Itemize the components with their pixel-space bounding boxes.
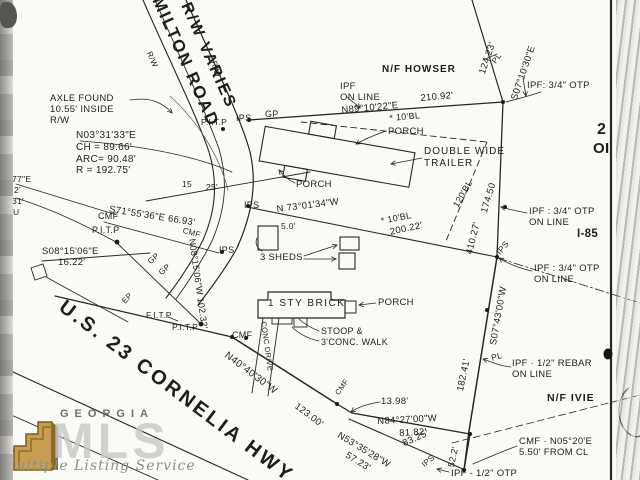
- ref-i85: I-85: [577, 228, 598, 242]
- house-label: 1 STY BRICK: [268, 298, 345, 310]
- bearing-s0710: S07°10'30"E: [509, 44, 538, 101]
- bearing-n08: N08°15'06"W 102.32': [186, 238, 209, 330]
- ips-road-1: IPS: [244, 200, 259, 211]
- bl-120: 120'BL: [451, 178, 475, 209]
- ips-east: IPS: [494, 239, 511, 257]
- ipf-otp-mid1: IPF : 3/4" OTP ON LINE: [529, 206, 595, 228]
- fitp-1: F.I.T.P: [146, 310, 172, 320]
- bl-10-north: * 10'BL: [389, 110, 421, 123]
- ipf-otp-top: IPF: 3/4" OTP: [527, 80, 590, 91]
- porch-trailer-bottom: PORCH: [296, 179, 332, 190]
- gp-mid-2: GP: [157, 262, 172, 277]
- cmf-2: CMF: [182, 226, 202, 240]
- double-wide-trailer: DOUBLE WIDE TRAILER: [424, 146, 505, 170]
- note-ipf-online-top: IPF ON LINE: [340, 81, 380, 103]
- dist-north-line: 210.92': [420, 90, 454, 104]
- dist-1622: 16.22': [58, 257, 85, 268]
- dim-25: 25': [206, 182, 218, 192]
- dist-18241: 182.41': [455, 358, 473, 393]
- edge-frag-31: 31': [12, 196, 24, 206]
- conc-drive: CONC DRIVE: [258, 321, 274, 372]
- cmf-note: CMF · N05°20'E 5.50' FROM CL: [519, 436, 592, 458]
- ips-top: IPS: [236, 113, 251, 124]
- edge-frag-u: U: [13, 207, 19, 217]
- note-axle-found: AXLE FOUND 10.55' INSIDE R/W: [50, 93, 114, 127]
- pitp-2: P.I.T.P: [172, 322, 198, 332]
- ipf-rebar: IPF · 1/2" REBAR ON LINE: [512, 358, 592, 380]
- pitp-top: P.I.T.P: [201, 117, 227, 127]
- dist-12300: 123.00': [292, 401, 325, 430]
- dist-522: 52.2': [446, 446, 461, 469]
- scan-edge-right: [616, 0, 640, 480]
- ips-road-2: IPS: [219, 245, 234, 256]
- gp-mid-1: GP: [146, 251, 161, 266]
- edge-frag-2: 2': [14, 185, 21, 195]
- cmf-1: CMF: [98, 211, 118, 222]
- dist-17450: 174.50: [479, 181, 499, 214]
- pitp-mid: P.I.T.P: [92, 225, 119, 236]
- bearing-s71: S71°55'36"E 66.93': [108, 204, 196, 229]
- curve-data: N03°31'33"E CH = 89.66' ARC= 90.48' R = …: [76, 130, 136, 177]
- rw-small-1: R/W: [144, 50, 159, 69]
- plat-survey-page: MILTON ROADR/W VARIESU.S. 23 CORNELIA HW…: [0, 0, 640, 480]
- owner-ivie: N/F IVIE: [547, 392, 595, 404]
- ipf-otp-mid2: IPF : 3/4" OTP ON LINE: [534, 263, 600, 285]
- bearing-s08: S08°15'06"E: [42, 246, 99, 257]
- ips-bottom: IPS: [420, 453, 437, 469]
- scan-edge-left: [0, 0, 13, 480]
- bearing-s0743: S07°43'00"W: [488, 286, 509, 346]
- cmf-3: CMF: [232, 330, 252, 341]
- pl-marker-right: PL: [490, 350, 503, 363]
- bearing-n84: N84°27'00"W: [377, 413, 437, 427]
- dist-41027: 410.27': [464, 221, 483, 256]
- edge-frag-77e: 77"E: [12, 174, 31, 184]
- owner-howser: N/F HOWSER: [382, 64, 456, 76]
- dist-1398: 13.98': [381, 396, 408, 407]
- sheds-label: 3 SHEDS: [260, 252, 303, 263]
- ipf-otp-bottom: IPF - 1/2" OTP: [451, 468, 517, 479]
- dim-5-0: 5.0': [281, 221, 296, 231]
- plat-labels: MILTON ROADR/W VARIESU.S. 23 CORNELIA HW…: [0, 0, 640, 480]
- porch-house: PORCH: [378, 297, 414, 308]
- ep-marker-label: EP: [120, 291, 135, 306]
- lot-number-fragment-2: OI: [593, 140, 609, 158]
- bearing-n73: N 73°01'34"W: [276, 196, 340, 215]
- scan-artifact-top-left: [0, 2, 17, 28]
- porch-trailer-top: PORCH: [388, 126, 424, 137]
- cmf-4: CMF: [334, 378, 351, 397]
- lot-number-fragment-1: 2: [597, 121, 606, 140]
- dim-15: 15: [182, 179, 192, 189]
- stoop-note: STOOP & 3'CONC. WALK: [321, 326, 388, 347]
- gp-top: GP: [265, 109, 279, 120]
